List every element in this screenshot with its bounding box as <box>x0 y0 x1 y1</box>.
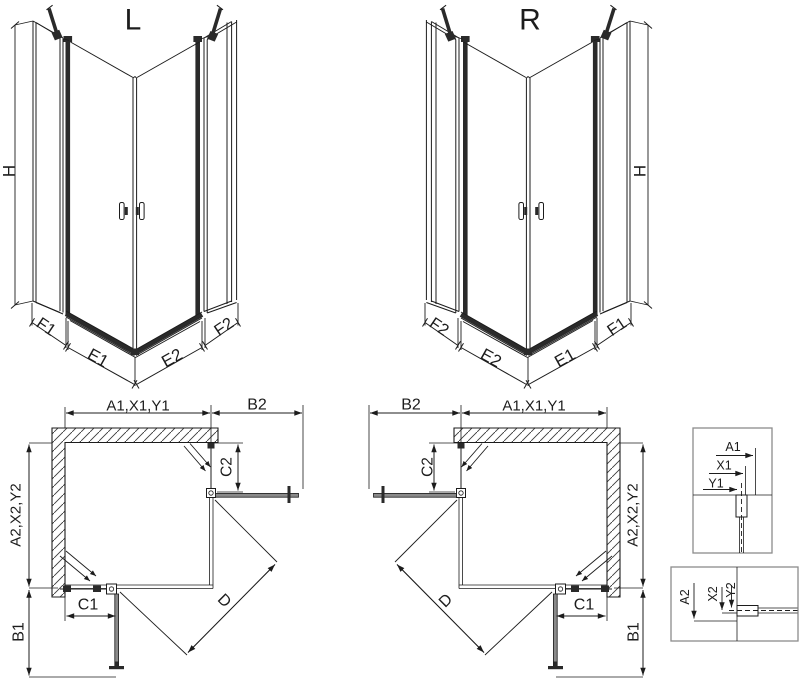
label-x1-detail: X1 <box>716 459 731 473</box>
label-c1-planr: C1 <box>574 597 595 614</box>
view-3d-right: R H F2 E2 E1 F1 <box>423 4 653 389</box>
label-e2-r: E2 <box>477 345 504 372</box>
drawing-canvas: L H F1 E1 E2 F2 R H F2 E2 E1 F1 A1,X1,Y1… <box>0 0 800 688</box>
view-title-r: R <box>519 4 541 37</box>
label-d-planl: D <box>214 591 234 611</box>
view-title-l: L <box>125 4 142 37</box>
label-f2-l: F2 <box>211 314 237 340</box>
label-d-planr: D <box>436 591 456 611</box>
label-e1-l: E1 <box>84 345 111 372</box>
label-a1-detail: A1 <box>725 440 740 454</box>
label-a2-detail: A2 <box>678 589 692 604</box>
label-f1-l: F1 <box>33 314 59 340</box>
detail-box-glass-top: A1 X1 Y1 <box>693 428 772 553</box>
plan-view-left: A1,X1,Y1 B2 C2 A2,X2,Y2 B1 C1 D <box>8 397 304 678</box>
label-x2-detail: X2 <box>706 586 720 601</box>
label-a2x2y2-planr: A2,X2,Y2 <box>625 483 642 546</box>
label-c1-planl: C1 <box>78 597 99 614</box>
label-a2x2y2-planl: A2,X2,Y2 <box>8 483 25 546</box>
wall-hatched-left-plan <box>52 428 218 597</box>
label-e1-r: E1 <box>551 345 578 372</box>
label-y2-detail: Y2 <box>724 582 738 597</box>
label-b2-planl: B2 <box>247 397 267 414</box>
label-height-r: H <box>631 165 650 177</box>
label-c2-planr: C2 <box>420 457 437 477</box>
plan-view-right: B2 A1,X1,Y1 C2 A2,X2,Y2 B1 C1 D <box>369 397 643 678</box>
label-c2-planl: C2 <box>219 457 236 477</box>
label-b2-planr: B2 <box>401 397 421 414</box>
wall-hatched-right-plan <box>454 428 620 597</box>
label-a1x1y1-planr: A1,X1,Y1 <box>502 398 565 415</box>
label-f2-r: F2 <box>426 314 452 340</box>
label-a1x1y1-planl: A1,X1,Y1 <box>106 398 169 415</box>
label-e2-l: E2 <box>158 345 185 372</box>
label-b1-planl: B1 <box>11 622 28 642</box>
label-b1-planr: B1 <box>626 622 643 642</box>
technical-drawing: L H F1 E1 E2 F2 R H F2 E2 E1 F1 A1,X1,Y1… <box>0 0 800 688</box>
label-height-l: H <box>0 165 19 177</box>
label-f1-r: F1 <box>604 314 630 340</box>
label-y1-detail: Y1 <box>708 477 723 491</box>
detail-box-glass-bottom: A2 X2 Y2 <box>671 567 798 641</box>
view-3d-left: L H F1 E1 E2 F2 <box>0 4 241 389</box>
